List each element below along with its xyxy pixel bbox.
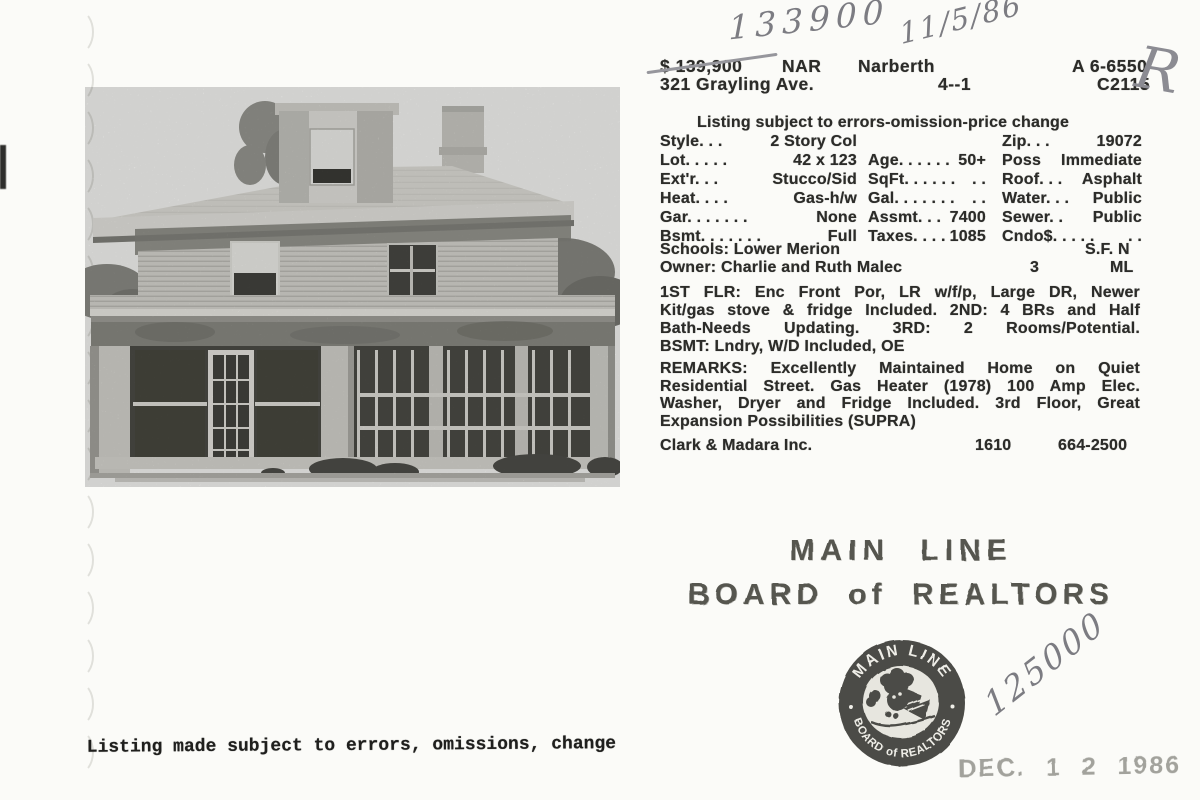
house-photo — [85, 87, 620, 487]
remarks-line: REMARKS: Excellently Maintained Home on … — [660, 360, 1140, 378]
field-style: Style. . .2 Story Col — [660, 133, 857, 151]
footer-disclaimer: Listing made subject to errors, omission… — [73, 682, 617, 800]
punch-hole — [64, 634, 94, 678]
field-sqft: SqFt. . . . . .. . — [868, 171, 986, 189]
footer-disclaimer-line1: Listing made subject to errors, omission… — [87, 732, 616, 761]
board-seal: MAIN LINE BOARD of REALTORS — [835, 636, 969, 770]
board-title-line1: MAIN LINE — [660, 534, 1142, 568]
remarks-line: Expansion Possibilities (SUPRA) — [660, 413, 1140, 431]
broker-code: 1610 — [975, 437, 1011, 455]
field-sewer: Sewer. .Public — [1002, 209, 1142, 227]
field-assessment: Assmt. . .7400 — [868, 209, 986, 227]
board-title-line2: BOARD of REALTORS — [660, 578, 1142, 612]
field-lot: Lot. . . . .42 x 123 — [660, 152, 857, 170]
field-roof: Roof. . .Asphalt — [1002, 171, 1142, 189]
punch-hole — [64, 10, 94, 54]
description-line: Bath-Needs Updating. 3RD: 2 Rooms/Potent… — [660, 320, 1140, 338]
owner-number: 3 — [1030, 259, 1039, 277]
field-water: Water. . .Public — [1002, 190, 1142, 208]
description-line: Kit/gas stove & fridge Included. 2ND: 4 … — [660, 302, 1140, 320]
broker-name: Clark & Madara Inc. — [660, 437, 812, 455]
remarks-line: Residential Street. Gas Heater (1978) 10… — [660, 378, 1140, 396]
description-line: 1ST FLR: Enc Front Por, LR w/f/p, Large … — [660, 284, 1140, 302]
scanned-listing-sheet: $ 139,900 NAR Narberth A 6-6550 321 Gray… — [0, 0, 1200, 800]
field-possession: PossImmediate — [1002, 152, 1142, 170]
town-name: Narberth — [858, 57, 935, 75]
field-heat: Heat. . . .Gas-h/w — [660, 190, 857, 208]
field-gallons: Gal. . . . . . .. . — [868, 190, 986, 208]
schools-line: Schools: Lower Merion — [660, 241, 840, 259]
field-zip: Zip. . .19072 — [1002, 133, 1142, 151]
ml-flag: ML — [1110, 259, 1134, 277]
description-line: BSMT: Lndry, W/D Included, OE — [660, 338, 1140, 356]
org-code: NAR — [782, 57, 821, 75]
sf-flag: S.F. N — [1085, 241, 1130, 259]
scan-smudge — [0, 145, 6, 189]
punch-hole — [64, 490, 94, 534]
punch-hole — [64, 586, 94, 630]
owner-line: Owner: Charlie and Ruth Malec — [660, 259, 902, 277]
field-garage: Gar. . . . . . .None — [660, 209, 857, 227]
field-taxes: Taxes. . . .1085 — [868, 228, 986, 246]
remarks-line: Washer, Dryer and Fridge Included. 3rd F… — [660, 395, 1140, 413]
street-address: 321 Grayling Ave. — [660, 75, 814, 93]
beds-baths-code: 4--1 — [938, 75, 971, 93]
received-date-stamp: DEC. 1 2 1986 — [958, 751, 1181, 784]
errors-notice: Listing subject to errors-omission-price… — [697, 114, 1069, 132]
field-age: Age. . . . . .50+ — [868, 152, 986, 170]
broker-phone: 664-2500 — [1058, 437, 1127, 455]
field-exterior: Ext'r. . .Stucco/Sid — [660, 171, 857, 189]
punch-hole — [64, 538, 94, 582]
